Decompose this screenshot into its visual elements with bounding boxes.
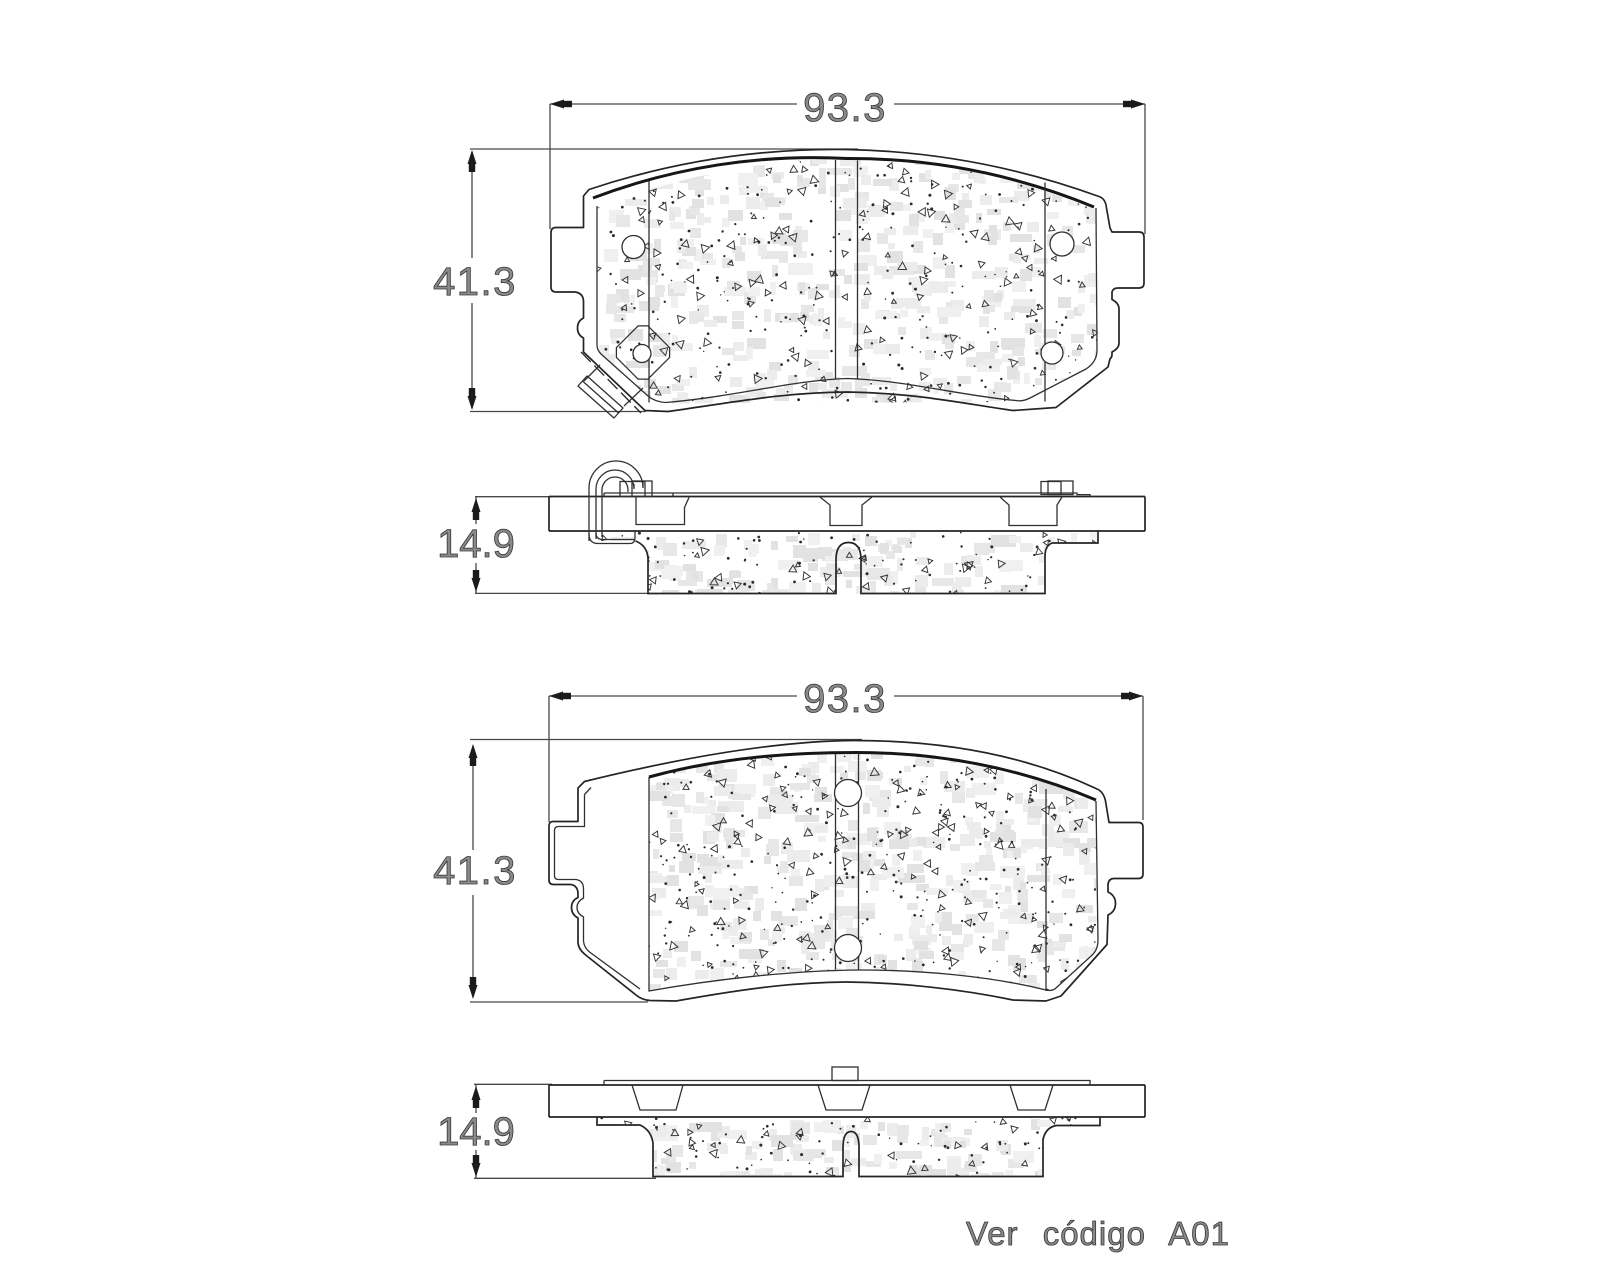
svg-text:41.3: 41.3 [433,260,517,304]
svg-text:93.3: 93.3 [803,677,887,721]
svg-text:93.3: 93.3 [803,86,887,130]
svg-text:41.3: 41.3 [433,849,517,893]
svg-text:14.9: 14.9 [437,522,515,566]
svg-text:Ver código A01: Ver código A01 [966,1215,1230,1252]
svg-text:14.9: 14.9 [437,1110,515,1154]
